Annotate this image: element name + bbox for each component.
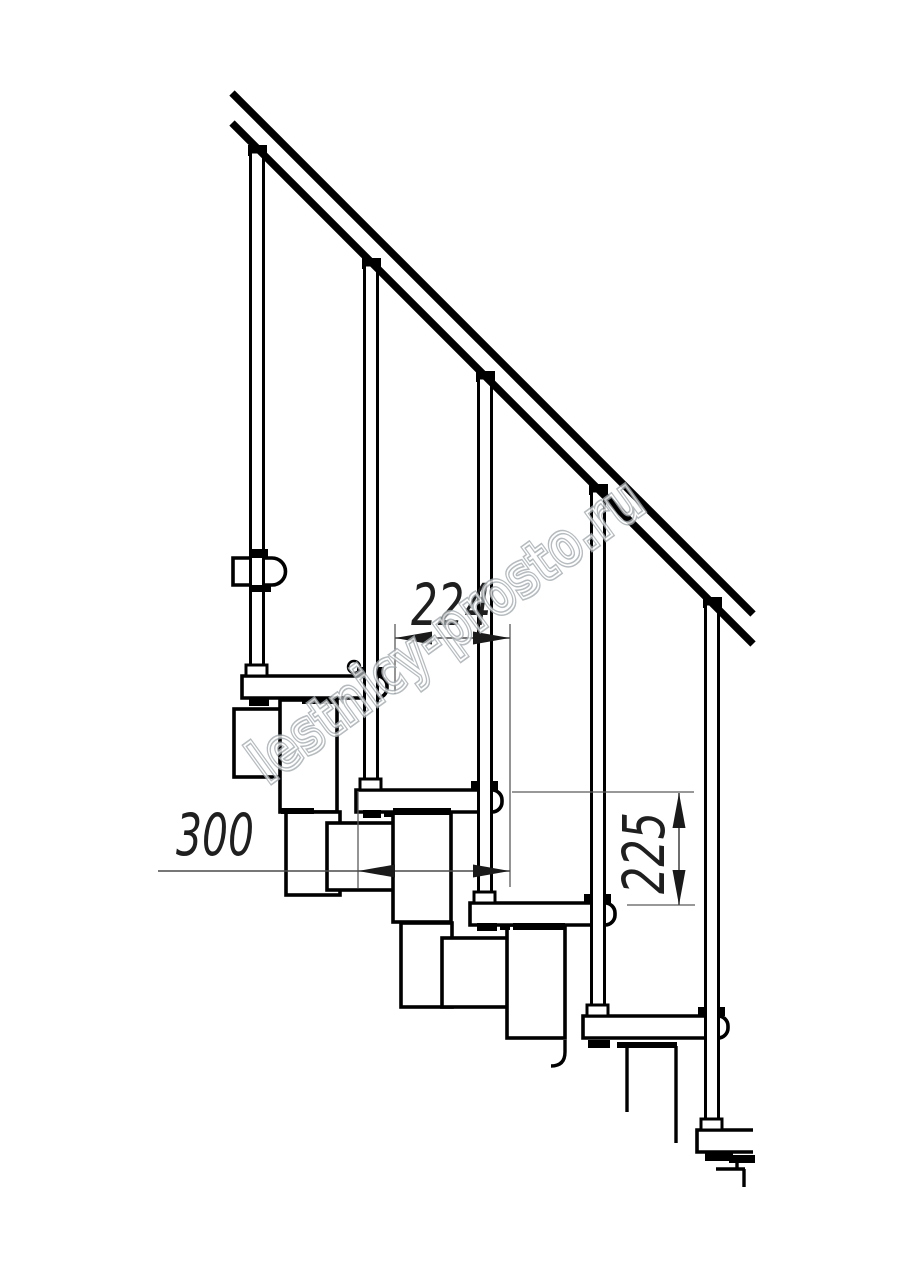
baluster-5 <box>701 597 722 1130</box>
baluster-shaft <box>592 491 605 1006</box>
module-top-strip <box>729 1155 755 1163</box>
baluster-collar <box>584 894 591 903</box>
module-top-strip <box>617 1042 677 1048</box>
module-joint-strip <box>281 808 314 814</box>
baluster-collar <box>471 781 478 790</box>
dimension-value-300: 300 <box>176 801 254 869</box>
tread-pad <box>363 810 381 818</box>
module-fade-line <box>551 1040 565 1066</box>
dimension-value-225: 225 <box>610 812 678 894</box>
baluster-collar <box>604 894 611 903</box>
tread-pad <box>705 1152 733 1161</box>
baluster-foot <box>360 779 381 790</box>
module-top-strip <box>393 808 451 815</box>
bracket-pad <box>249 585 271 592</box>
tread-pad <box>384 811 394 817</box>
baluster-foot <box>587 1005 608 1016</box>
baluster-collar <box>698 1007 705 1016</box>
baluster-collar <box>491 781 498 790</box>
bracket-collar <box>250 549 268 558</box>
baluster-collar <box>718 1007 725 1016</box>
baluster-foot <box>701 1119 722 1130</box>
baluster-shaft <box>706 604 719 1120</box>
baluster-foot <box>474 892 495 903</box>
module-top-strip <box>513 923 565 930</box>
module-box <box>393 810 451 922</box>
module-box <box>507 925 565 1038</box>
tread-5-partial <box>697 1130 753 1152</box>
staircase-drawing-page: 224 300 225 lestnicy-prosto.ru lestnicy-… <box>0 0 914 1280</box>
tread-pad <box>249 698 269 706</box>
tread-pad <box>588 1040 610 1048</box>
baluster-1 <box>246 145 267 676</box>
staircase-technical-drawing: 224 300 225 lestnicy-prosto.ru lestnicy-… <box>0 0 914 1280</box>
tread-pad <box>500 924 510 930</box>
tread-pad <box>477 923 497 931</box>
baluster-foot <box>246 665 267 676</box>
